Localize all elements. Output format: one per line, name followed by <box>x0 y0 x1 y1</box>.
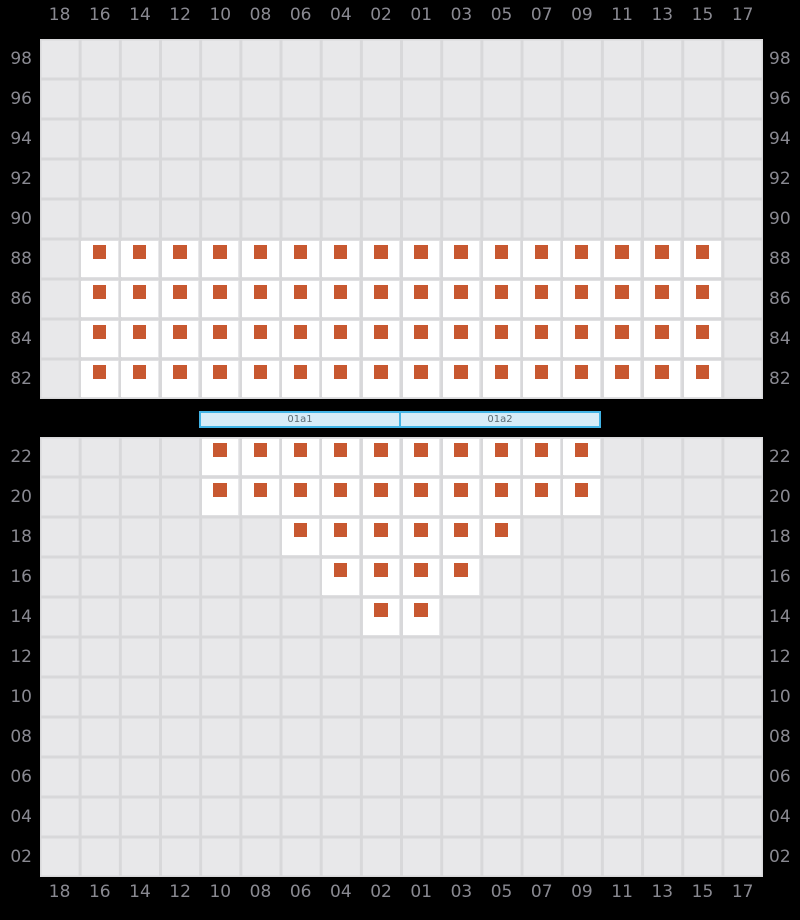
row-label-right-12: 12 <box>769 637 799 677</box>
seat-occupied-marker <box>615 245 629 259</box>
seat-occupied-marker <box>213 483 227 497</box>
seat-occupied-marker <box>334 563 348 577</box>
row-label-right-18: 18 <box>769 517 799 557</box>
seat-occupied-marker <box>374 563 388 577</box>
seat-occupied-marker <box>696 245 710 259</box>
seat-occupied-marker <box>374 483 388 497</box>
seat-lower-r16-c04[interactable] <box>322 559 359 595</box>
row-label-right-82: 82 <box>769 359 799 399</box>
seat-occupied-marker <box>334 483 348 497</box>
seat-occupied-marker <box>334 443 348 457</box>
seat-upper-r88-c08[interactable] <box>242 241 279 277</box>
seat-upper-r86-c07[interactable] <box>523 281 560 317</box>
seat-occupied-marker <box>454 365 468 379</box>
seat-occupied-marker <box>294 483 308 497</box>
seat-occupied-marker <box>374 365 388 379</box>
row-label-left-18: 18 <box>2 517 32 557</box>
stage-segment-01a1: 01a1 <box>201 413 399 426</box>
seat-occupied-marker <box>495 443 509 457</box>
seat-occupied-marker <box>655 285 669 299</box>
seat-occupied-marker <box>294 245 308 259</box>
row-label-left-22: 22 <box>2 437 32 477</box>
seat-occupied-marker <box>414 365 428 379</box>
row-label-right-92: 92 <box>769 159 799 199</box>
column-label-bottom-12: 12 <box>160 879 200 906</box>
seat-upper-r88-c13[interactable] <box>644 241 681 277</box>
seat-occupied-marker <box>454 245 468 259</box>
seat-occupied-marker <box>173 365 187 379</box>
seat-upper-r86-c16[interactable] <box>81 281 118 317</box>
seat-lower-r22-c06[interactable] <box>282 439 319 475</box>
seat-occupied-marker <box>334 523 348 537</box>
seat-occupied-marker <box>535 285 549 299</box>
seat-occupied-marker <box>254 325 268 339</box>
seat-occupied-marker <box>254 245 268 259</box>
seat-upper-r82-c01[interactable] <box>403 361 440 397</box>
seat-upper-r88-c06[interactable] <box>282 241 319 277</box>
seat-upper-r88-c01[interactable] <box>403 241 440 277</box>
seat-occupied-marker <box>414 563 428 577</box>
seat-occupied-marker <box>454 483 468 497</box>
seat-occupied-marker <box>213 245 227 259</box>
seat-occupied-marker <box>655 245 669 259</box>
stage-segment-label: 01a1 <box>287 414 312 425</box>
seat-upper-r84-c15[interactable] <box>684 321 721 357</box>
row-label-right-86: 86 <box>769 279 799 319</box>
stage-segment-label: 01a2 <box>487 414 512 425</box>
seat-occupied-marker <box>213 365 227 379</box>
seat-occupied-marker <box>575 285 589 299</box>
column-label-bottom-06: 06 <box>281 879 321 906</box>
column-label-bottom-16: 16 <box>80 879 120 906</box>
seat-upper-r88-c05[interactable] <box>483 241 520 277</box>
seat-occupied-marker <box>133 365 147 379</box>
column-label-bottom-07: 07 <box>522 879 562 906</box>
column-label-top-13: 13 <box>642 2 682 29</box>
seat-upper-r86-c05[interactable] <box>483 281 520 317</box>
seat-upper-r88-c07[interactable] <box>523 241 560 277</box>
seat-occupied-marker <box>93 285 107 299</box>
seat-occupied-marker <box>414 325 428 339</box>
seat-lower-r20-c02[interactable] <box>363 479 400 515</box>
seat-upper-r82-c16[interactable] <box>81 361 118 397</box>
seat-upper-r84-c08[interactable] <box>242 321 279 357</box>
seat-upper-r82-c15[interactable] <box>684 361 721 397</box>
row-label-right-94: 94 <box>769 119 799 159</box>
row-label-left-10: 10 <box>2 677 32 717</box>
seat-occupied-marker <box>414 603 428 617</box>
seat-occupied-marker <box>213 443 227 457</box>
seat-upper-r86-c01[interactable] <box>403 281 440 317</box>
row-label-right-90: 90 <box>769 199 799 239</box>
column-label-top-06: 06 <box>281 2 321 29</box>
seat-lower-r18-c04[interactable] <box>322 519 359 555</box>
seat-lower-r20-c04[interactable] <box>322 479 359 515</box>
seat-lower-r16-c01[interactable] <box>403 559 440 595</box>
row-label-left-06: 06 <box>2 757 32 797</box>
seat-occupied-marker <box>133 285 147 299</box>
seat-occupied-marker <box>535 483 549 497</box>
seat-lower-r20-c08[interactable] <box>242 479 279 515</box>
seat-occupied-marker <box>294 325 308 339</box>
seat-occupied-marker <box>254 443 268 457</box>
seat-upper-r82-c12[interactable] <box>162 361 199 397</box>
row-label-left-84: 84 <box>2 319 32 359</box>
row-label-left-92: 92 <box>2 159 32 199</box>
column-label-bottom-08: 08 <box>240 879 280 906</box>
seat-lower-r22-c08[interactable] <box>242 439 279 475</box>
seat-occupied-marker <box>615 325 629 339</box>
seat-occupied-marker <box>414 443 428 457</box>
seat-occupied-marker <box>535 365 549 379</box>
seat-upper-r88-c16[interactable] <box>81 241 118 277</box>
row-label-left-96: 96 <box>2 79 32 119</box>
row-label-right-14: 14 <box>769 597 799 637</box>
column-label-top-18: 18 <box>40 2 80 29</box>
seat-occupied-marker <box>535 443 549 457</box>
column-label-top-02: 02 <box>361 2 401 29</box>
row-label-left-90: 90 <box>2 199 32 239</box>
row-label-right-10: 10 <box>769 677 799 717</box>
seat-occupied-marker <box>294 285 308 299</box>
seat-lower-r20-c01[interactable] <box>403 479 440 515</box>
column-label-top-05: 05 <box>481 2 521 29</box>
seat-lower-r14-c01[interactable] <box>403 599 440 635</box>
column-label-top-15: 15 <box>682 2 722 29</box>
seat-upper-r82-c04[interactable] <box>322 361 359 397</box>
seat-upper-r82-c13[interactable] <box>644 361 681 397</box>
row-label-left-16: 16 <box>2 557 32 597</box>
column-label-top-17: 17 <box>723 2 763 29</box>
column-label-bottom-02: 02 <box>361 879 401 906</box>
column-label-top-03: 03 <box>441 2 481 29</box>
seat-upper-r86-c02[interactable] <box>363 281 400 317</box>
row-label-right-88: 88 <box>769 239 799 279</box>
row-label-left-82: 82 <box>2 359 32 399</box>
seat-lower-r14-c02[interactable] <box>363 599 400 635</box>
seat-upper-r82-c07[interactable] <box>523 361 560 397</box>
column-label-bottom-10: 10 <box>200 879 240 906</box>
seat-occupied-marker <box>615 365 629 379</box>
column-label-bottom-11: 11 <box>602 879 642 906</box>
seat-upper-r84-c04[interactable] <box>322 321 359 357</box>
column-label-bottom-01: 01 <box>401 879 441 906</box>
seat-occupied-marker <box>374 285 388 299</box>
seat-occupied-marker <box>374 245 388 259</box>
seat-lower-r16-c02[interactable] <box>363 559 400 595</box>
seat-upper-r88-c14[interactable] <box>121 241 158 277</box>
seat-occupied-marker <box>93 325 107 339</box>
seat-lower-r22-c01[interactable] <box>403 439 440 475</box>
column-label-bottom-18: 18 <box>40 879 80 906</box>
seat-upper-r84-c05[interactable] <box>483 321 520 357</box>
seat-occupied-marker <box>454 325 468 339</box>
column-label-bottom-13: 13 <box>642 879 682 906</box>
seat-upper-r88-c03[interactable] <box>443 241 480 277</box>
seat-occupied-marker <box>575 245 589 259</box>
seat-upper-r88-c02[interactable] <box>363 241 400 277</box>
row-label-left-04: 04 <box>2 797 32 837</box>
seat-occupied-marker <box>213 325 227 339</box>
seat-occupied-marker <box>254 365 268 379</box>
column-label-top-08: 08 <box>240 2 280 29</box>
seat-lower-r18-c02[interactable] <box>363 519 400 555</box>
seat-lower-r20-c09[interactable] <box>563 479 600 515</box>
row-label-right-02: 02 <box>769 837 799 877</box>
column-label-top-04: 04 <box>321 2 361 29</box>
seat-upper-r86-c13[interactable] <box>644 281 681 317</box>
seat-occupied-marker <box>495 245 509 259</box>
column-label-top-14: 14 <box>120 2 160 29</box>
seat-upper-r86-c14[interactable] <box>121 281 158 317</box>
seat-lower-r22-c05[interactable] <box>483 439 520 475</box>
seat-upper-r88-c11[interactable] <box>604 241 641 277</box>
row-label-right-96: 96 <box>769 79 799 119</box>
lower-section-grid <box>40 437 763 877</box>
column-label-bottom-04: 04 <box>321 879 361 906</box>
seat-occupied-marker <box>696 285 710 299</box>
seat-upper-r84-c10[interactable] <box>202 321 239 357</box>
seat-occupied-marker <box>575 483 589 497</box>
seat-upper-r86-c08[interactable] <box>242 281 279 317</box>
seat-upper-r82-c09[interactable] <box>563 361 600 397</box>
seat-occupied-marker <box>495 325 509 339</box>
seat-upper-r84-c02[interactable] <box>363 321 400 357</box>
seat-upper-r82-c08[interactable] <box>242 361 279 397</box>
seat-occupied-marker <box>173 325 187 339</box>
seat-lower-r22-c10[interactable] <box>202 439 239 475</box>
seat-occupied-marker <box>254 483 268 497</box>
seat-occupied-marker <box>535 325 549 339</box>
column-label-bottom-15: 15 <box>682 879 722 906</box>
seat-occupied-marker <box>575 443 589 457</box>
stage-bar: 01a1 01a2 <box>199 411 601 428</box>
row-label-left-02: 02 <box>2 837 32 877</box>
seat-upper-r88-c12[interactable] <box>162 241 199 277</box>
seat-lower-r18-c06[interactable] <box>282 519 319 555</box>
seat-occupied-marker <box>495 523 509 537</box>
column-label-bottom-09: 09 <box>562 879 602 906</box>
column-label-top-07: 07 <box>522 2 562 29</box>
seat-upper-r84-c06[interactable] <box>282 321 319 357</box>
seat-lower-r16-c03[interactable] <box>443 559 480 595</box>
seat-upper-r86-c11[interactable] <box>604 281 641 317</box>
seat-upper-r84-c16[interactable] <box>81 321 118 357</box>
column-label-top-10: 10 <box>200 2 240 29</box>
column-label-top-12: 12 <box>160 2 200 29</box>
seat-upper-r84-c01[interactable] <box>403 321 440 357</box>
seat-occupied-marker <box>213 285 227 299</box>
seat-occupied-marker <box>173 245 187 259</box>
seat-occupied-marker <box>495 483 509 497</box>
seat-occupied-marker <box>334 245 348 259</box>
seat-occupied-marker <box>655 365 669 379</box>
seat-lower-r18-c03[interactable] <box>443 519 480 555</box>
column-label-bottom-03: 03 <box>441 879 481 906</box>
stage-segment-01a2: 01a2 <box>399 413 599 426</box>
seat-lower-r18-c01[interactable] <box>403 519 440 555</box>
seat-occupied-marker <box>374 325 388 339</box>
seat-occupied-marker <box>454 285 468 299</box>
seat-occupied-marker <box>93 245 107 259</box>
seat-lower-r22-c07[interactable] <box>523 439 560 475</box>
row-label-right-22: 22 <box>769 437 799 477</box>
seat-upper-r82-c05[interactable] <box>483 361 520 397</box>
seat-occupied-marker <box>414 285 428 299</box>
seat-upper-r84-c11[interactable] <box>604 321 641 357</box>
seat-upper-r86-c06[interactable] <box>282 281 319 317</box>
seat-occupied-marker <box>454 563 468 577</box>
seat-upper-r82-c06[interactable] <box>282 361 319 397</box>
seat-occupied-marker <box>334 325 348 339</box>
row-label-left-88: 88 <box>2 239 32 279</box>
column-label-top-09: 09 <box>562 2 602 29</box>
seat-upper-r88-c10[interactable] <box>202 241 239 277</box>
seat-occupied-marker <box>454 443 468 457</box>
seat-occupied-marker <box>454 523 468 537</box>
row-label-right-06: 06 <box>769 757 799 797</box>
row-label-left-98: 98 <box>2 39 32 79</box>
seat-occupied-marker <box>696 365 710 379</box>
seat-upper-r86-c10[interactable] <box>202 281 239 317</box>
seat-occupied-marker <box>414 245 428 259</box>
seat-lower-r20-c03[interactable] <box>443 479 480 515</box>
seat-upper-r82-c03[interactable] <box>443 361 480 397</box>
seat-occupied-marker <box>575 365 589 379</box>
seat-occupied-marker <box>615 285 629 299</box>
seat-upper-r86-c04[interactable] <box>322 281 359 317</box>
column-label-bottom-17: 17 <box>723 879 763 906</box>
seat-upper-r84-c03[interactable] <box>443 321 480 357</box>
seat-occupied-marker <box>374 443 388 457</box>
seat-occupied-marker <box>93 365 107 379</box>
seat-occupied-marker <box>374 603 388 617</box>
row-label-right-08: 08 <box>769 717 799 757</box>
seat-lower-r22-c02[interactable] <box>363 439 400 475</box>
row-label-right-98: 98 <box>769 39 799 79</box>
row-label-left-20: 20 <box>2 477 32 517</box>
column-label-top-01: 01 <box>401 2 441 29</box>
seat-map-canvas: 01a1 01a2 181816161414121210100808060604… <box>0 0 800 920</box>
seat-lower-r22-c04[interactable] <box>322 439 359 475</box>
seat-occupied-marker <box>334 285 348 299</box>
seat-occupied-marker <box>655 325 669 339</box>
seat-occupied-marker <box>254 285 268 299</box>
row-label-left-86: 86 <box>2 279 32 319</box>
seat-upper-r82-c11[interactable] <box>604 361 641 397</box>
seat-upper-r84-c12[interactable] <box>162 321 199 357</box>
seat-occupied-marker <box>495 285 509 299</box>
seat-lower-r20-c07[interactable] <box>523 479 560 515</box>
seat-occupied-marker <box>535 245 549 259</box>
seat-lower-r22-c09[interactable] <box>563 439 600 475</box>
seat-upper-r82-c10[interactable] <box>202 361 239 397</box>
seat-upper-r86-c09[interactable] <box>563 281 600 317</box>
seat-upper-r86-c03[interactable] <box>443 281 480 317</box>
row-label-left-12: 12 <box>2 637 32 677</box>
seat-occupied-marker <box>294 443 308 457</box>
seat-occupied-marker <box>294 365 308 379</box>
seat-occupied-marker <box>575 325 589 339</box>
seat-upper-r82-c14[interactable] <box>121 361 158 397</box>
seat-upper-r86-c15[interactable] <box>684 281 721 317</box>
row-label-left-14: 14 <box>2 597 32 637</box>
seat-lower-r18-c05[interactable] <box>483 519 520 555</box>
column-label-bottom-14: 14 <box>120 879 160 906</box>
row-label-right-20: 20 <box>769 477 799 517</box>
row-label-right-16: 16 <box>769 557 799 597</box>
seat-upper-r88-c15[interactable] <box>684 241 721 277</box>
seat-upper-r88-c09[interactable] <box>563 241 600 277</box>
seat-occupied-marker <box>495 365 509 379</box>
column-label-top-11: 11 <box>602 2 642 29</box>
seat-occupied-marker <box>414 523 428 537</box>
seat-upper-r84-c13[interactable] <box>644 321 681 357</box>
seat-upper-r84-c07[interactable] <box>523 321 560 357</box>
column-label-top-16: 16 <box>80 2 120 29</box>
seat-upper-r84-c14[interactable] <box>121 321 158 357</box>
seat-occupied-marker <box>334 365 348 379</box>
seat-upper-r88-c04[interactable] <box>322 241 359 277</box>
seat-lower-r20-c05[interactable] <box>483 479 520 515</box>
row-label-right-84: 84 <box>769 319 799 359</box>
row-label-right-04: 04 <box>769 797 799 837</box>
seat-upper-r86-c12[interactable] <box>162 281 199 317</box>
seat-occupied-marker <box>696 325 710 339</box>
seat-occupied-marker <box>133 325 147 339</box>
seat-occupied-marker <box>173 285 187 299</box>
seat-occupied-marker <box>414 483 428 497</box>
row-label-left-94: 94 <box>2 119 32 159</box>
seat-occupied-marker <box>133 245 147 259</box>
seat-lower-r20-c10[interactable] <box>202 479 239 515</box>
seat-occupied-marker <box>294 523 308 537</box>
seat-lower-r20-c06[interactable] <box>282 479 319 515</box>
column-label-bottom-05: 05 <box>481 879 521 906</box>
seat-upper-r84-c09[interactable] <box>563 321 600 357</box>
seat-lower-r22-c03[interactable] <box>443 439 480 475</box>
row-label-left-08: 08 <box>2 717 32 757</box>
seat-occupied-marker <box>374 523 388 537</box>
seat-upper-r82-c02[interactable] <box>363 361 400 397</box>
